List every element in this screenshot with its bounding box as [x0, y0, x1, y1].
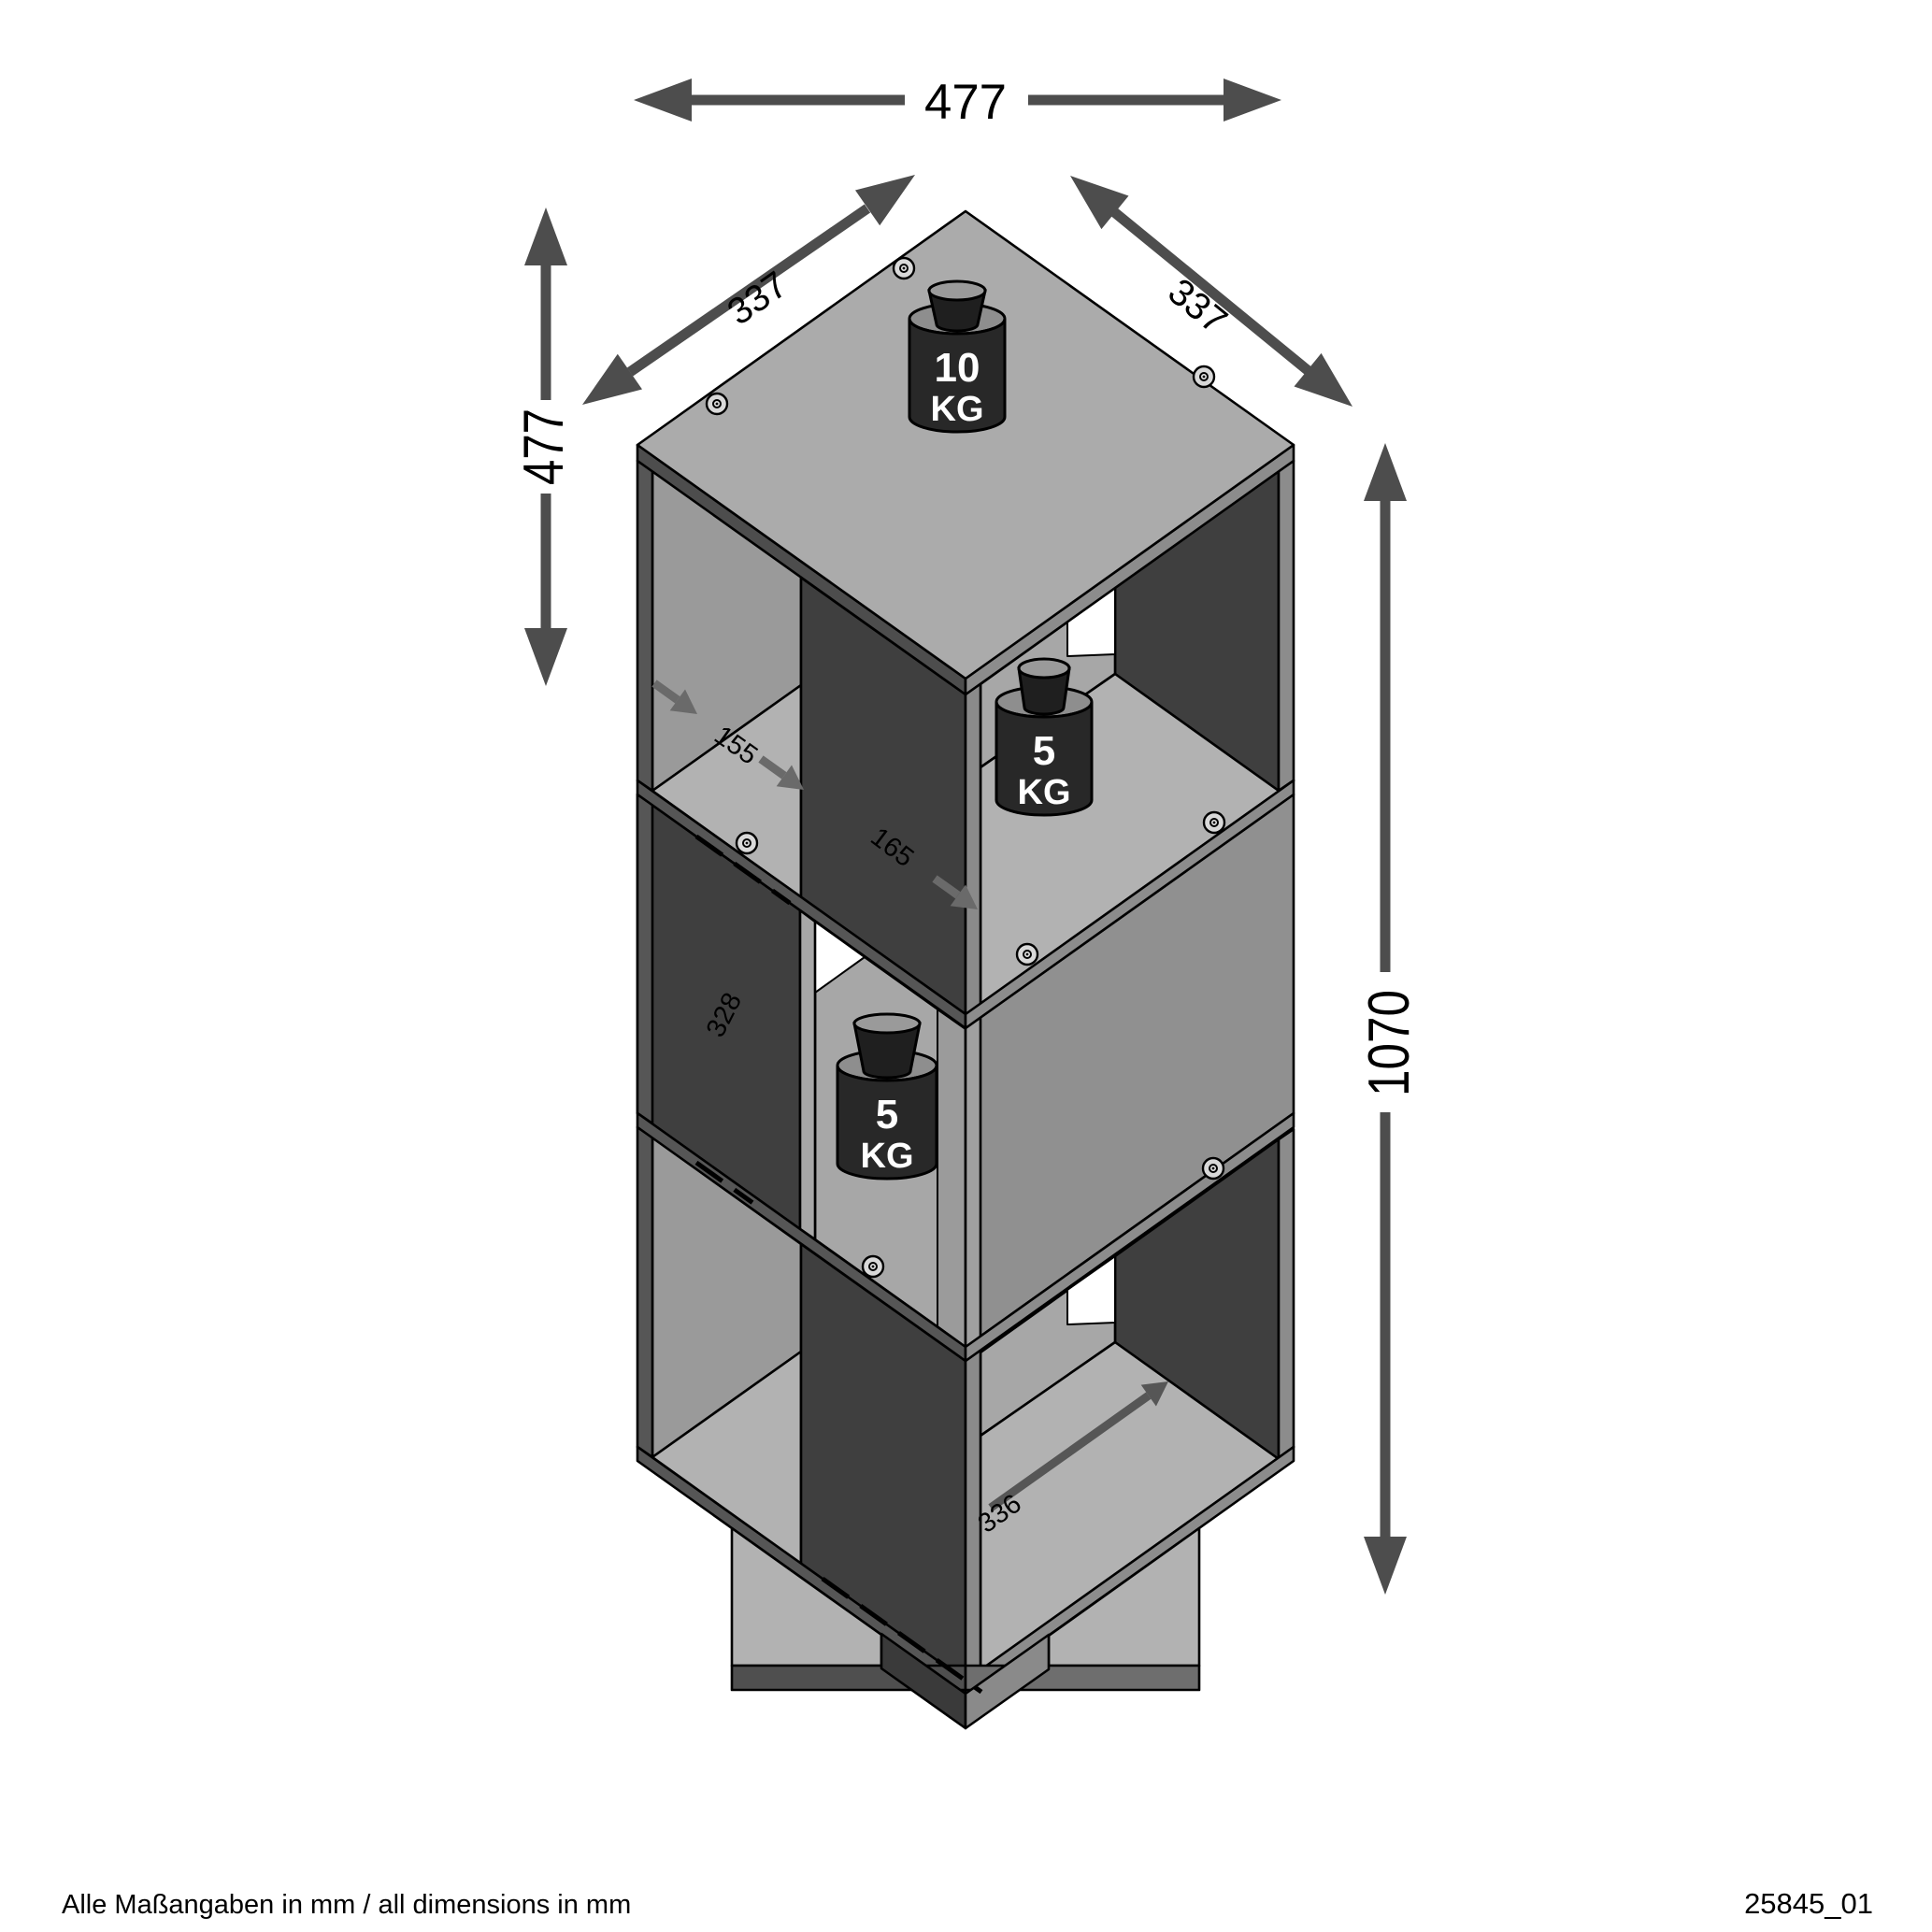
svg-text:5: 5 [1033, 728, 1055, 774]
svg-text:5: 5 [876, 1092, 898, 1138]
svg-text:25845_01: 25845_01 [1744, 1887, 1873, 1920]
svg-text:1070: 1070 [1357, 990, 1422, 1096]
svg-text:10: 10 [935, 345, 980, 391]
svg-text:KG: KG [861, 1137, 914, 1176]
svg-text:477: 477 [924, 75, 1007, 130]
svg-text:Alle Maßangaben in mm / all di: Alle Maßangaben in mm / all dimensions i… [62, 1890, 631, 1920]
svg-text:KG: KG [931, 390, 984, 429]
svg-text:KG: KG [1018, 773, 1071, 812]
svg-text:477: 477 [512, 408, 575, 485]
